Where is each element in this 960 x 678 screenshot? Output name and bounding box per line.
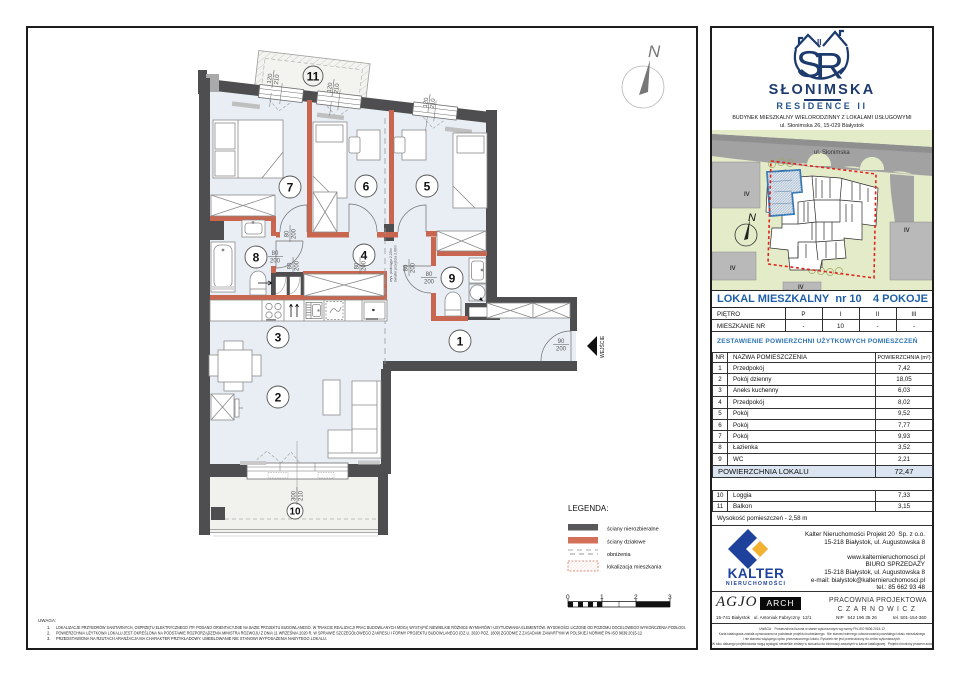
svg-text:200: 200 — [556, 347, 567, 353]
svg-text:11: 11 — [307, 70, 320, 84]
svg-text:obniżenia: obniżenia — [607, 552, 631, 558]
svg-text:200: 200 — [270, 259, 281, 265]
svg-text:3.: 3. — [47, 636, 51, 641]
svg-text:80: 80 — [404, 264, 410, 271]
svg-text:LEGENDA:: LEGENDA: — [568, 504, 608, 513]
svg-text:200: 200 — [411, 262, 417, 273]
svg-text:8: 8 — [253, 251, 260, 265]
svg-text:światło przejścia 2,00m: światło przejścia 2,00m — [394, 245, 398, 282]
svg-text:1.: 1. — [47, 625, 51, 630]
svg-text:ul. Słonimska: ul. Słonimska — [814, 150, 850, 156]
svg-text:200: 200 — [295, 260, 301, 271]
svg-text:IV: IV — [730, 266, 736, 272]
svg-text:200: 200 — [292, 228, 298, 239]
svg-text:200: 200 — [362, 260, 368, 271]
svg-text:210: 210 — [299, 490, 305, 501]
svg-text:WEJŚCIE: WEJŚCIE — [598, 335, 606, 358]
svg-text:6: 6 — [363, 180, 370, 194]
svg-text:IV: IV — [904, 228, 910, 234]
svg-text:80: 80 — [426, 272, 433, 278]
svg-text:ściany nierozbieralne: ściany nierozbieralne — [607, 527, 659, 533]
svg-text:LOKALIZACJE PRZYBORÓW SANITARN: LOKALIZACJE PRZYBORÓW SANITARNYCH, OSPRZ… — [56, 625, 686, 630]
svg-text:4: 4 — [361, 249, 368, 263]
svg-text:N: N — [748, 212, 756, 224]
svg-text:90: 90 — [558, 339, 565, 345]
svg-text:IV: IV — [744, 192, 750, 198]
svg-text:wys. podciągu 2,20m: wys. podciągu 2,20m — [389, 248, 393, 282]
svg-text:80: 80 — [285, 230, 291, 237]
svg-text:2: 2 — [275, 391, 282, 405]
svg-text:N: N — [648, 42, 661, 61]
svg-text:ściany działowe: ściany działowe — [607, 540, 646, 546]
svg-text:UWAGA:: UWAGA: — [38, 618, 56, 623]
svg-text:80: 80 — [272, 251, 279, 257]
svg-text:PRZEDSTAWIONA NA RZUTACH ARANŻ: PRZEDSTAWIONA NA RZUTACH ARANŻACJA MA CH… — [56, 636, 327, 641]
svg-text:5: 5 — [424, 180, 431, 194]
svg-text:1: 1 — [457, 335, 464, 349]
svg-text:200: 200 — [424, 280, 435, 286]
svg-text:10: 10 — [289, 507, 301, 518]
svg-text:80: 80 — [288, 262, 294, 269]
svg-text:7: 7 — [287, 181, 294, 195]
svg-text:300: 300 — [292, 490, 298, 501]
svg-text:3: 3 — [275, 331, 282, 345]
svg-text:80: 80 — [355, 262, 361, 269]
svg-text:POWIERZCHNIA UŻYTKOWA LOKALU J: POWIERZCHNIA UŻYTKOWA LOKALU JEST OKREŚL… — [56, 631, 643, 636]
svg-text:9: 9 — [449, 272, 456, 286]
svg-text:lokalizacja mieszkania: lokalizacja mieszkania — [607, 565, 662, 571]
svg-text:2.: 2. — [47, 631, 51, 636]
